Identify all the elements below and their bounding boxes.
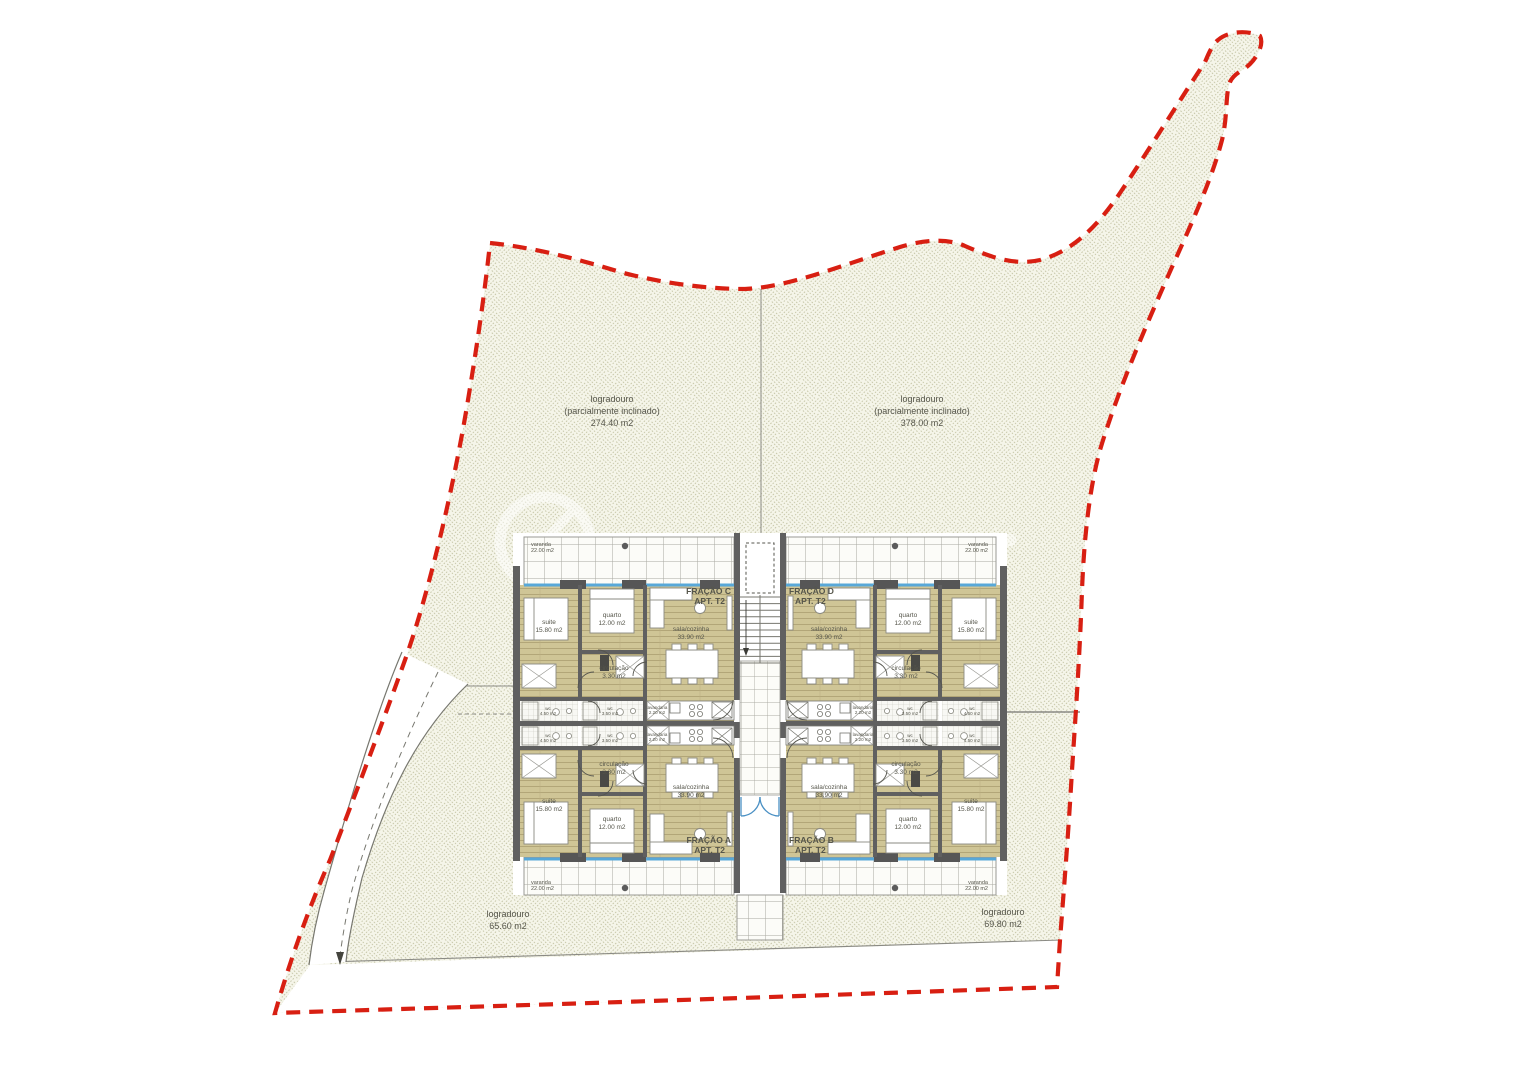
svg-text:circulação: circulação	[891, 761, 921, 768]
svg-text:(parcialmente inclinado): (parcialmente inclinado)	[564, 406, 660, 416]
svg-text:4.50 m2: 4.50 m2	[540, 738, 557, 743]
svg-text:33.90 m2: 33.90 m2	[815, 634, 842, 641]
svg-text:APT. T2: APT. T2	[694, 845, 725, 855]
svg-text:2.20 m2: 2.20 m2	[649, 737, 666, 742]
svg-text:12.00 m2: 12.00 m2	[598, 824, 625, 831]
svg-text:APT. T2: APT. T2	[694, 596, 725, 606]
svg-text:3.50 m2: 3.50 m2	[902, 738, 919, 743]
svg-text:FRAÇÃO B: FRAÇÃO B	[789, 835, 834, 845]
svg-text:33.90 m2: 33.90 m2	[815, 792, 842, 799]
svg-text:suite: suite	[542, 619, 556, 626]
svg-text:3.30 m2: 3.30 m2	[894, 673, 918, 680]
svg-text:15.80 m2: 15.80 m2	[535, 627, 562, 634]
svg-text:quarto: quarto	[899, 612, 918, 619]
svg-text:sala/cozinha: sala/cozinha	[673, 784, 710, 791]
svg-text:sala/cozinha: sala/cozinha	[811, 784, 848, 791]
svg-text:logradouro: logradouro	[590, 394, 633, 404]
svg-text:FRAÇÃO D: FRAÇÃO D	[789, 586, 834, 596]
svg-text:logradouro: logradouro	[900, 394, 943, 404]
svg-text:4.50 m2: 4.50 m2	[964, 738, 981, 743]
entrance-walkway	[737, 895, 783, 940]
svg-text:2.20 m2: 2.20 m2	[855, 710, 872, 715]
svg-text:4.50 m2: 4.50 m2	[540, 711, 557, 716]
svg-text:378.00 m2: 378.00 m2	[901, 418, 944, 428]
site-plan-drawing: logradouro (parcialmente inclinado) 274.…	[0, 0, 1529, 1080]
svg-text:APT. T2: APT. T2	[795, 845, 826, 855]
building	[513, 533, 1007, 940]
svg-text:33.90 m2: 33.90 m2	[677, 792, 704, 799]
svg-text:15.80 m2: 15.80 m2	[957, 806, 984, 813]
svg-text:quarto: quarto	[899, 816, 918, 823]
svg-text:22.00 m2: 22.00 m2	[965, 886, 988, 892]
svg-text:quarto: quarto	[603, 612, 622, 619]
svg-text:circulação: circulação	[891, 665, 921, 672]
svg-text:15.80 m2: 15.80 m2	[957, 627, 984, 634]
svg-text:FRAÇÃO A: FRAÇÃO A	[686, 835, 731, 845]
floor-plan-page: logradouro (parcialmente inclinado) 274.…	[0, 0, 1529, 1080]
svg-text:4.50 m2: 4.50 m2	[964, 711, 981, 716]
svg-text:logradouro: logradouro	[486, 909, 529, 919]
svg-text:suite: suite	[964, 798, 978, 805]
svg-text:3.50 m2: 3.50 m2	[602, 711, 619, 716]
svg-text:33.90 m2: 33.90 m2	[677, 634, 704, 641]
svg-text:22.00 m2: 22.00 m2	[531, 548, 554, 554]
svg-text:sala/cozinha: sala/cozinha	[673, 626, 710, 633]
svg-text:(parcialmente inclinado): (parcialmente inclinado)	[874, 406, 970, 416]
svg-text:quarto: quarto	[603, 816, 622, 823]
svg-text:22.00 m2: 22.00 m2	[965, 548, 988, 554]
svg-text:2.20 m2: 2.20 m2	[649, 710, 666, 715]
svg-text:logradouro: logradouro	[981, 907, 1024, 917]
svg-text:3.50 m2: 3.50 m2	[902, 711, 919, 716]
svg-text:69.80 m2: 69.80 m2	[984, 919, 1022, 929]
svg-text:22.00 m2: 22.00 m2	[531, 886, 554, 892]
svg-text:sala/cozinha: sala/cozinha	[811, 626, 848, 633]
svg-text:3.30 m2: 3.30 m2	[602, 769, 626, 776]
svg-text:3.30 m2: 3.30 m2	[894, 769, 918, 776]
svg-text:FRAÇÃO C: FRAÇÃO C	[686, 586, 731, 596]
svg-text:3.50 m2: 3.50 m2	[602, 738, 619, 743]
svg-text:circulação: circulação	[599, 761, 629, 768]
svg-text:274.40 m2: 274.40 m2	[591, 418, 634, 428]
svg-text:circulação: circulação	[599, 665, 629, 672]
svg-text:3.30 m2: 3.30 m2	[602, 673, 626, 680]
svg-text:15.80 m2: 15.80 m2	[535, 806, 562, 813]
svg-text:2.20 m2: 2.20 m2	[855, 737, 872, 742]
svg-text:12.00 m2: 12.00 m2	[894, 824, 921, 831]
svg-text:12.00 m2: 12.00 m2	[894, 620, 921, 627]
svg-text:suite: suite	[542, 798, 556, 805]
svg-text:suite: suite	[964, 619, 978, 626]
svg-text:12.00 m2: 12.00 m2	[598, 620, 625, 627]
svg-text:65.60 m2: 65.60 m2	[489, 921, 527, 931]
svg-text:APT. T2: APT. T2	[795, 596, 826, 606]
